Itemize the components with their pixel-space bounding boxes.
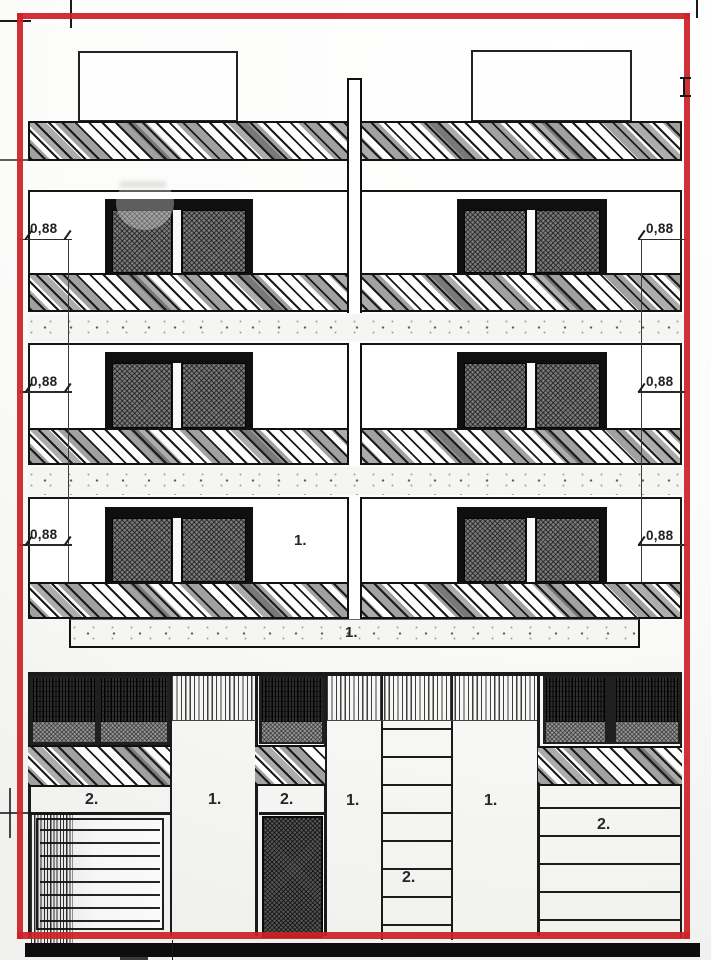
joint-shaft-top bbox=[347, 78, 362, 313]
transom-window bbox=[616, 678, 678, 742]
garage-right-slat bbox=[539, 835, 680, 837]
lintel-hatch-entrance bbox=[255, 745, 325, 786]
dim-label-floor2-right: 0,88 bbox=[646, 374, 673, 389]
transom-window bbox=[262, 678, 322, 742]
lintel-hatch-right bbox=[538, 746, 682, 786]
pillar-mid-left-label: 1. bbox=[346, 792, 359, 810]
window-glass-panel bbox=[536, 363, 600, 428]
garage-right-slat bbox=[539, 891, 680, 893]
highlight-border-right bbox=[684, 13, 690, 939]
entrance-label: 2. bbox=[280, 791, 293, 809]
floor1-window-right bbox=[457, 507, 607, 582]
window-mullion bbox=[172, 518, 182, 582]
entrance-door bbox=[262, 816, 323, 938]
dim-label-floor3-left: 0,88 bbox=[30, 221, 57, 236]
watermark-text-blur bbox=[120, 181, 166, 188]
transom-window bbox=[101, 678, 167, 742]
transom-railing-band bbox=[327, 676, 537, 721]
floor2-window-right bbox=[457, 352, 607, 428]
tick-left-bottom-v bbox=[9, 788, 11, 838]
ground-line bbox=[25, 943, 700, 957]
pillar-mid-right-label: 1. bbox=[484, 792, 497, 810]
stair-step bbox=[383, 784, 451, 786]
garage-left-door-shading bbox=[31, 813, 73, 948]
stair-step bbox=[383, 812, 451, 814]
tick-left-slab bbox=[0, 159, 28, 161]
stair-step bbox=[383, 840, 451, 842]
pillar-left-label: 1. bbox=[208, 791, 221, 809]
garage-right-label: 2. bbox=[597, 816, 610, 834]
ground-tick-v bbox=[172, 940, 174, 960]
elevation-drawing: 0,88 0,88 0,88 0,88 1. 0,88 0,88 bbox=[0, 0, 711, 960]
corner-tick-top-right-v bbox=[696, 0, 698, 18]
window-glass-panel bbox=[464, 518, 526, 582]
roof-box-left bbox=[78, 51, 238, 122]
dim-label-floor2-left: 0,88 bbox=[30, 374, 57, 389]
stair-step bbox=[383, 756, 451, 758]
window-glass-panel bbox=[464, 210, 526, 273]
dim-line-floor3-right bbox=[638, 239, 687, 241]
entrance-sill bbox=[259, 812, 325, 815]
stair-step bbox=[383, 924, 451, 926]
corner-tick-top-left-h bbox=[0, 20, 31, 22]
extension-line-left bbox=[68, 239, 69, 582]
garage-right-slat bbox=[539, 807, 680, 809]
window-mullion bbox=[172, 210, 182, 273]
window-glass-panel bbox=[182, 210, 246, 273]
dim-line-floor2-right bbox=[638, 391, 687, 393]
garage-right-transom-frame bbox=[543, 676, 680, 744]
window-mullion bbox=[526, 363, 536, 428]
window-glass-panel bbox=[464, 363, 526, 428]
section-divider bbox=[537, 676, 540, 936]
stair-step bbox=[383, 728, 451, 730]
window-mullion bbox=[526, 518, 536, 582]
window-glass-panel bbox=[112, 518, 172, 582]
stair-step bbox=[383, 868, 451, 870]
floor2-window-left bbox=[105, 352, 253, 428]
floor2-concrete-band bbox=[28, 467, 684, 495]
joint-shaft-low bbox=[347, 497, 362, 619]
ground-floor-top-edge bbox=[28, 672, 682, 676]
parapet-band-label: 1. bbox=[345, 624, 358, 641]
floor3-window-right bbox=[457, 199, 607, 273]
extension-line-right bbox=[641, 239, 642, 582]
tick-right-border-v bbox=[683, 77, 685, 97]
dim-label-floor3-right: 0,88 bbox=[646, 221, 673, 236]
window-glass-panel bbox=[536, 518, 600, 582]
window-glass-panel bbox=[182, 518, 246, 582]
dim-line-floor1-right bbox=[638, 544, 687, 546]
joint-shaft-mid bbox=[347, 343, 362, 465]
highlight-border-left bbox=[17, 13, 23, 939]
staircase-label: 2. bbox=[402, 869, 415, 887]
entrance-transom-frame bbox=[259, 676, 325, 744]
window-mullion bbox=[526, 210, 536, 273]
garage-right-slat bbox=[539, 919, 680, 921]
window-glass-panel bbox=[182, 363, 246, 428]
floor3-concrete-band bbox=[28, 314, 684, 341]
lintel-hatch-left bbox=[28, 745, 170, 787]
garage-right-slat bbox=[539, 863, 680, 865]
window-mullion bbox=[172, 363, 182, 428]
highlight-border-top bbox=[17, 13, 690, 19]
stair-step bbox=[383, 896, 451, 898]
transom-window bbox=[33, 678, 95, 742]
window-glass-panel bbox=[536, 210, 600, 273]
garage-left-transom-frame bbox=[30, 676, 170, 745]
transom-window bbox=[546, 678, 605, 742]
tick-left-bottom-h bbox=[0, 812, 30, 814]
floor1-window-left bbox=[105, 507, 253, 582]
highlight-border-bottom bbox=[17, 932, 690, 939]
floor1-unit-label: 1. bbox=[294, 532, 307, 549]
garage-left-label: 2. bbox=[85, 791, 98, 809]
dim-label-floor1-right: 0,88 bbox=[646, 528, 673, 543]
tick-right-border-h1 bbox=[680, 77, 691, 79]
window-glass-panel bbox=[112, 363, 172, 428]
roof-box-right bbox=[471, 50, 632, 122]
transom-railing-band bbox=[172, 676, 256, 721]
dim-label-floor1-left: 0,88 bbox=[30, 527, 57, 542]
tick-right-border-h2 bbox=[680, 95, 691, 97]
